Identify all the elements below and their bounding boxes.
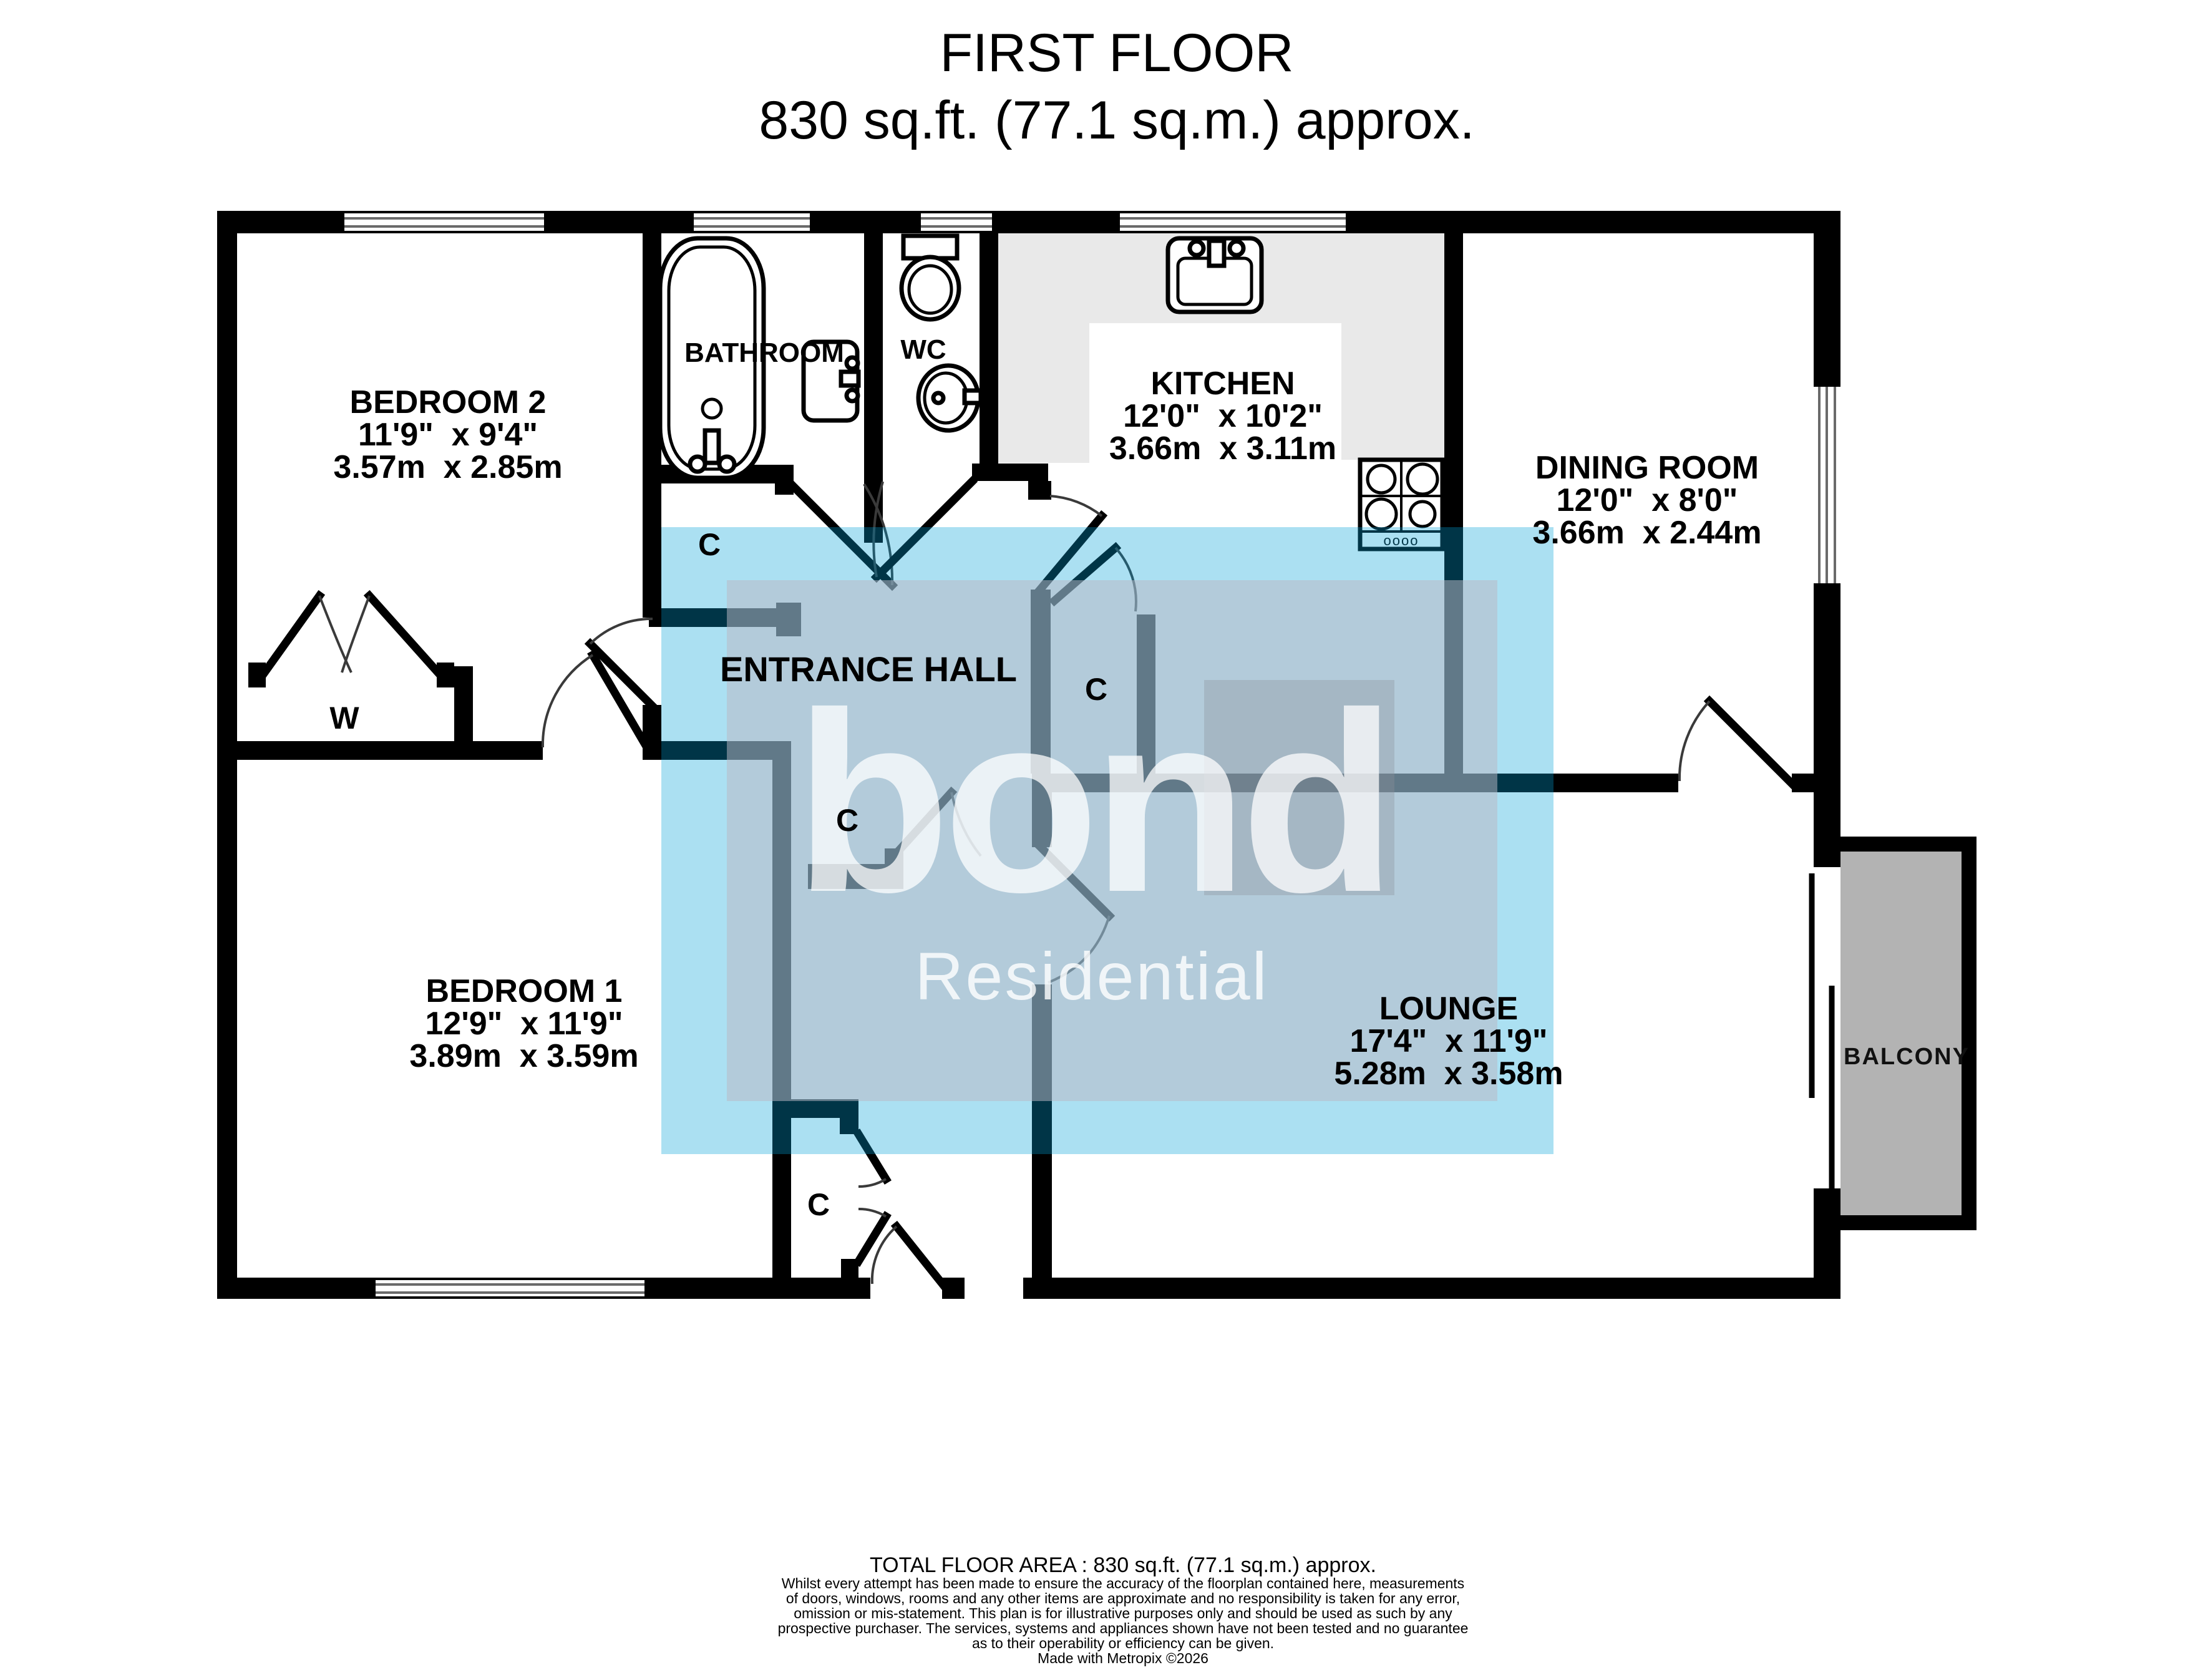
kitchen-sink-symbol — [1168, 238, 1262, 312]
dining-door — [1680, 701, 1792, 784]
dining-metric: 3.66m x 2.44m — [1532, 515, 1761, 551]
kitchen-imperial: 12'0" x 10'2" — [1123, 398, 1323, 434]
title-line1: FIRST FLOOR — [940, 23, 1293, 83]
bedroom1-name: BEDROOM 1 — [426, 973, 623, 1009]
room-dining: DINING ROOM 12'0" x 8'0" 3.66m x 2.44m — [1532, 450, 1761, 551]
room-bedroom1: BEDROOM 1 12'9" x 11'9" 3.89m x 3.59m — [409, 973, 638, 1074]
window-bedroom2 — [344, 213, 544, 231]
wardrobe-doors — [265, 596, 438, 672]
lounge-metric: 5.28m x 3.58m — [1334, 1056, 1563, 1092]
disclaimer-line5: as to their operability or efficiency ca… — [972, 1635, 1274, 1651]
window-bedroom1 — [376, 1280, 644, 1296]
disclaimer-line1: Whilst every attempt has been made to en… — [782, 1575, 1464, 1591]
metropix-credit: Made with Metropix ©2026 — [1038, 1650, 1208, 1666]
bathroom-name: BATHROOM — [684, 337, 844, 368]
bedroom2-imperial: 11'9" x 9'4" — [358, 417, 538, 453]
room-kitchen: KITCHEN 12'0" x 10'2" 3.66m x 3.11m — [1109, 366, 1336, 467]
closet-c4-label: C — [807, 1187, 830, 1222]
floorplan-canvas: FIRST FLOOR 830 sq.ft. (77.1 sq.m.) appr… — [0, 0, 2188, 1680]
disclaimer-line4: prospective purchaser. The services, sys… — [778, 1620, 1469, 1636]
hall-name: ENTRANCE HALL — [720, 649, 1017, 689]
lounge-name: LOUNGE — [1379, 991, 1518, 1027]
bedroom1-door — [543, 655, 648, 749]
balcony-floor — [1840, 852, 1962, 1215]
balcony-sliding-door — [1812, 873, 1832, 1188]
watermark-subtitle: Residential — [915, 938, 1268, 1014]
bedroom2-name: BEDROOM 2 — [350, 384, 547, 420]
dining-imperial: 12'0" x 8'0" — [1557, 482, 1738, 518]
wc-basin-symbol — [918, 366, 981, 430]
closet-c2-label: C — [1085, 672, 1107, 707]
wardrobe-label: W — [329, 701, 359, 736]
dining-name: DINING ROOM — [1535, 450, 1759, 486]
kitchen-counter-right — [1341, 233, 1444, 460]
bedroom2-metric: 3.57m x 2.85m — [333, 449, 562, 485]
kitchen-metric: 3.66m x 3.11m — [1109, 430, 1336, 467]
window-dining — [1815, 387, 1839, 583]
kitchen-counter-left — [998, 233, 1089, 463]
closet-c1-label: C — [698, 527, 721, 562]
room-bedroom2: BEDROOM 2 11'9" x 9'4" 3.57m x 2.85m — [333, 384, 562, 485]
bedroom1-metric: 3.89m x 3.59m — [409, 1038, 638, 1074]
toilet-symbol — [902, 236, 959, 319]
bedroom1-imperial: 12'9" x 11'9" — [425, 1006, 623, 1042]
title-line2: 830 sq.ft. (77.1 sq.m.) approx. — [759, 90, 1474, 150]
plan-footer: TOTAL FLOOR AREA : 830 sq.ft. (77.1 sq.m… — [778, 1553, 1469, 1666]
window-wc — [921, 213, 992, 231]
balcony-name: BALCONY — [1844, 1044, 1970, 1070]
entrance-door — [872, 1226, 943, 1285]
closet-c3-label: C — [836, 803, 858, 838]
window-kitchen — [1120, 213, 1346, 231]
wc-name: WC — [900, 334, 946, 365]
lounge-imperial: 17'4" x 11'9" — [1350, 1023, 1548, 1059]
kitchen-name: KITCHEN — [1150, 366, 1295, 402]
disclaimer-line3: omission or mis-statement. This plan is … — [794, 1605, 1452, 1621]
disclaimer-line2: of doors, windows, rooms and any other i… — [786, 1590, 1460, 1606]
window-bathroom — [694, 213, 810, 231]
floorplan-page: FIRST FLOOR 830 sq.ft. (77.1 sq.m.) appr… — [0, 0, 2188, 1680]
plan-title: FIRST FLOOR 830 sq.ft. (77.1 sq.m.) appr… — [759, 23, 1474, 150]
total-floor-area: TOTAL FLOOR AREA : 830 sq.ft. (77.1 sq.m… — [870, 1553, 1376, 1577]
